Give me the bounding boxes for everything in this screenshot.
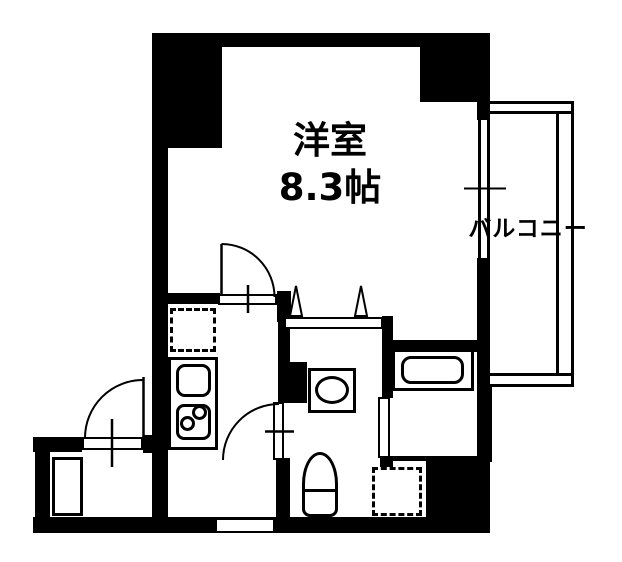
wall-washroom-left-block: [278, 362, 307, 403]
balcony-railing-inner-right: [556, 111, 559, 376]
shoe-cabinet: [52, 457, 83, 516]
washroom-door-swing-arc: [223, 404, 279, 460]
entrance-door-threshold: [82, 437, 143, 450]
wall-left: [152, 33, 168, 533]
wall-entrance-top-right: [143, 435, 168, 453]
room-door-swing-arc: [222, 244, 275, 297]
wall-washroom-left-lower: [276, 458, 290, 520]
bath-door-leaf: [378, 397, 390, 458]
wall-bottom-inset: [217, 520, 273, 531]
balcony-railing-inner-bottom: [490, 373, 571, 376]
stove-burner-small: [192, 405, 207, 420]
bifold-door-track: [284, 317, 383, 329]
toilet: [302, 452, 338, 517]
balcony-label: バルコニー: [462, 216, 594, 242]
wall-bath-bottom-line: [380, 456, 478, 461]
washing-machine-space: [372, 467, 422, 516]
main-room-name-label: 洋室: [250, 120, 410, 162]
bifold-triangle-left: [290, 286, 302, 316]
refrigerator-space: [170, 308, 216, 352]
stove-burner-large: [180, 416, 195, 431]
bathtub: [401, 356, 464, 384]
washroom-door-leaf: [273, 402, 284, 460]
wall-entrance-top-left: [33, 437, 82, 452]
toilet-seat-line: [303, 489, 337, 492]
floor-plan: 洋室 8.3帖 バルコニー: [0, 0, 622, 562]
balcony-railing-outer: [487, 101, 574, 387]
wall-kitchen-top: [160, 293, 220, 304]
main-room-size-label: 8.3帖: [250, 166, 410, 210]
washbasin-bowl: [315, 376, 349, 404]
kitchen-sink: [176, 364, 211, 397]
entrance-door-swing-arc: [85, 380, 144, 438]
bifold-triangle-right: [355, 286, 367, 316]
wall-block-top-right: [420, 33, 490, 102]
room-door-threshold: [218, 294, 277, 305]
